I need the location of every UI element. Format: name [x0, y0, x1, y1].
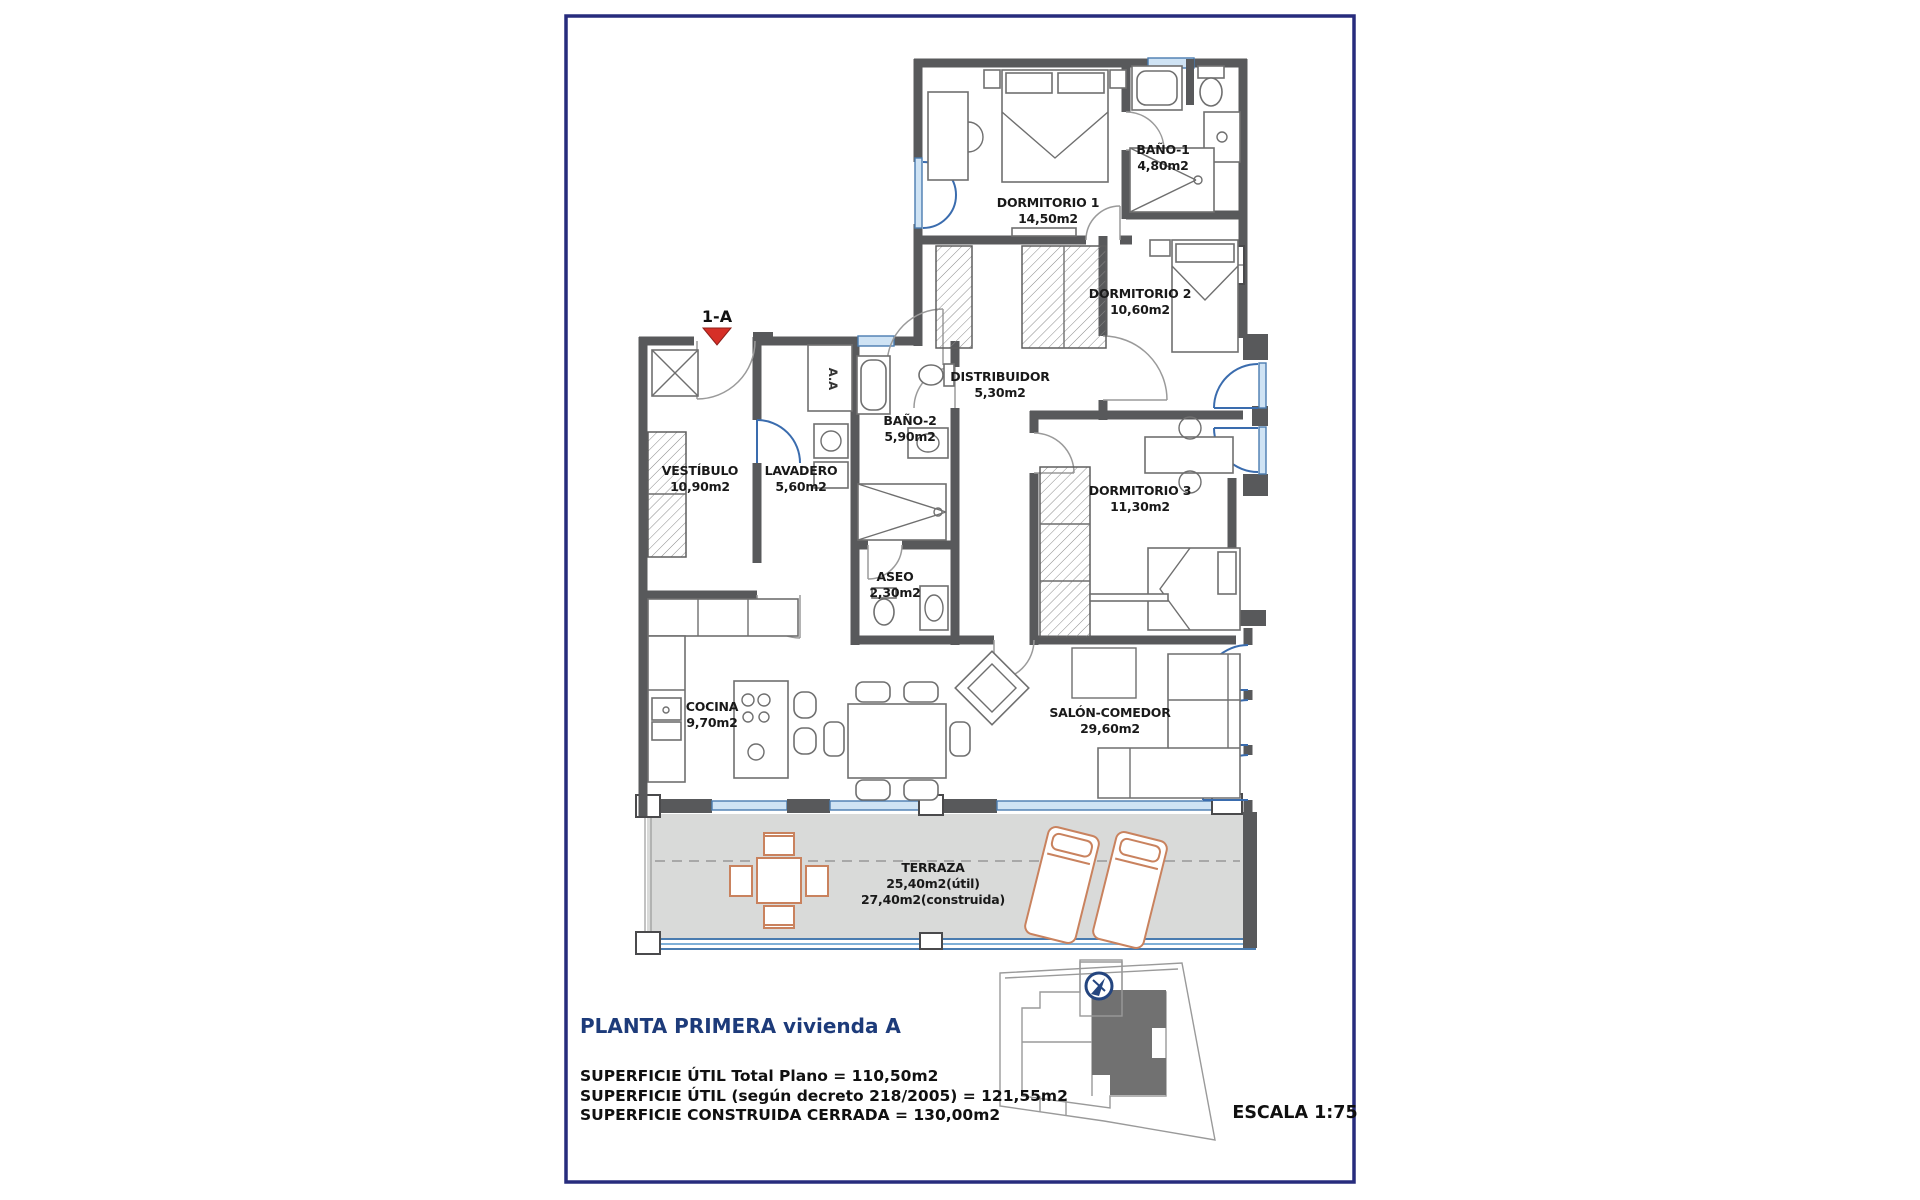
label-distribuidor-area: 5,30m2	[974, 385, 1025, 400]
label-dormitorio-2-area: 10,60m2	[1110, 302, 1170, 317]
label-terraza-area-construida: 27,40m2(construida)	[861, 892, 1005, 907]
label-aseo-name: ASEO	[876, 569, 913, 584]
window	[1259, 363, 1266, 408]
window	[915, 158, 922, 228]
shaft	[652, 350, 698, 396]
label-dormitorio-1-name: DORMITORIO 1	[997, 195, 1099, 210]
label-lavadero-name: LAVADERO	[765, 463, 838, 478]
bed-dormitorio-1	[984, 70, 1126, 182]
label-terraza-area-util: 25,40m2(útil)	[886, 876, 980, 891]
label-cocina-area: 9,70m2	[686, 715, 737, 730]
window	[1259, 427, 1266, 474]
label-bano-2-name: BAÑO-2	[883, 413, 936, 428]
label-bano-1-area: 4,80m2	[1137, 158, 1188, 173]
label-terraza-name: TERRAZA	[901, 860, 965, 875]
label-dormitorio-3-area: 11,30m2	[1110, 499, 1170, 514]
label-bano-1-name: BAÑO-1	[1136, 142, 1189, 157]
page-title: PLANTA PRIMERA vivienda A	[580, 1014, 901, 1038]
pillar	[920, 933, 942, 949]
sideboard	[1090, 594, 1168, 601]
bed-dormitorio-3	[1148, 548, 1240, 630]
north-compass-icon	[1086, 973, 1112, 999]
label-lavadero-area: 5,60m2	[775, 479, 826, 494]
label-salon-area: 29,60m2	[1080, 721, 1140, 736]
label-distribuidor-name: DISTRIBUIDOR	[950, 369, 1050, 384]
pillar	[636, 932, 660, 954]
superficie-line-3: SUPERFICIE CONSTRUIDA CERRADA = 130,00m2	[580, 1106, 1000, 1124]
label-dormitorio-3-name: DORMITORIO 3	[1089, 483, 1191, 498]
label-vestibulo-area: 10,90m2	[670, 479, 730, 494]
label-salon-name: SALÓN-COMEDOR	[1049, 705, 1171, 720]
floor-plan-canvas: 1-A A.A DORMITORIO 1 14,50m2 BAÑO-1 4,80…	[0, 0, 1920, 1200]
unit-marker-label: 1-A	[702, 307, 733, 326]
superficie-line-2: SUPERFICIE ÚTIL (según decreto 218/2005)…	[580, 1086, 1068, 1105]
wardrobe	[936, 246, 972, 348]
scale-label: ESCALA 1:75	[1232, 1103, 1357, 1123]
label-bano-2-area: 5,90m2	[884, 429, 935, 444]
wardrobe	[1040, 467, 1090, 637]
label-dormitorio-1-area: 14,50m2	[1018, 211, 1078, 226]
ac-label: A.A	[826, 368, 840, 390]
label-vestibulo-name: VESTÍBULO	[662, 463, 738, 478]
label-aseo-area: 2,30m2	[869, 585, 920, 600]
window	[858, 336, 894, 346]
label-dormitorio-2-name: DORMITORIO 2	[1089, 286, 1191, 301]
tv-cabinet	[1012, 228, 1076, 236]
superficie-line-1: SUPERFICIE ÚTIL Total Plano = 110,50m2	[580, 1066, 938, 1085]
label-cocina-name: COCINA	[686, 699, 739, 714]
